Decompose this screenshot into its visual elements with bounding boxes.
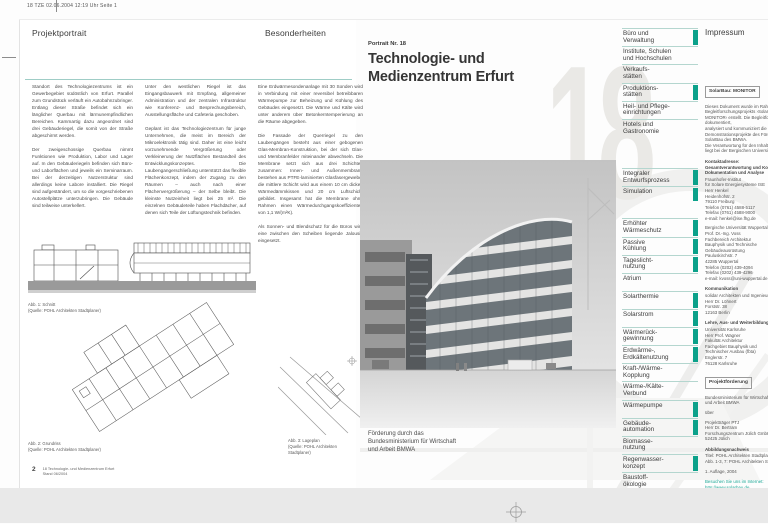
sidebar-item: Passive Kühlung xyxy=(622,237,698,255)
sidebar-item: Wärmepumpe xyxy=(622,400,698,418)
sidebar-item-label: Institute, Schulen und Hochschulen xyxy=(623,49,690,62)
sidebar-item-label: Heil- und Pflege- einrichtungen xyxy=(623,104,690,117)
figure2-caption: Abb. 2: Grundriss (Quelle: POHL Architek… xyxy=(28,441,101,453)
sidebar-item-label: Büro und Verwaltung xyxy=(623,31,690,44)
text-column-1: Standort des Technologiezentrums ist ein… xyxy=(32,83,133,216)
building-photo xyxy=(360,160,616,428)
sidebar-item-label: Tageslicht- nutzung xyxy=(623,258,690,271)
sidebar-item: Hotels und Gastronomie xyxy=(622,119,698,137)
sidebar-item-label: Gebäude- automation xyxy=(623,421,690,434)
active-marker xyxy=(693,293,698,308)
sidebar-item-label: Atrium xyxy=(623,276,690,283)
sidebar-item: Gebäude- automation xyxy=(622,418,698,436)
impressum-text-block: Titel: POHL Architekten Stadtplaner Abb.… xyxy=(705,453,768,464)
active-marker xyxy=(693,85,698,100)
impressum-text-block: Bundesministerium für Wirtschaft und Arb… xyxy=(705,395,768,406)
impressum-text-block: Projektförderung xyxy=(705,377,752,389)
impressum-column: Impressum SolarBau: MONITORDieses Dokume… xyxy=(705,28,768,490)
impressum-text-block: Fraunhofer-Institut für Solare Energiesy… xyxy=(705,177,768,222)
registration-mark xyxy=(504,500,528,524)
sidebar-item: Biomasse- nutzung xyxy=(622,436,698,454)
sidebar-item-label: Regenwasser- konzept xyxy=(623,457,690,470)
body-paragraph: Eine Erdwärmesondenanlage mit 30 Sonden … xyxy=(258,83,363,125)
sidebar-item-label: Integraler Entwurfsprozess xyxy=(623,171,690,184)
page-number: 2 xyxy=(32,466,36,477)
sidebar-item: Erdwärme-, Erdkältenutzung xyxy=(622,345,698,363)
impressum-text-block: Universität Karlsruhe Herr Prof. Wagner … xyxy=(705,327,768,366)
active-marker xyxy=(693,456,698,471)
footer-text: 18 Technologie- und Medienzentrum Erfurt… xyxy=(43,466,115,477)
body-paragraph: Die Fassade der Querriegel zu den Lauben… xyxy=(258,132,363,216)
active-marker xyxy=(693,170,698,185)
north-symbol xyxy=(347,356,357,366)
active-marker xyxy=(693,329,698,344)
sidebar-item: Institute, Schulen und Hochschulen xyxy=(622,46,698,64)
print-job-info: 18 TZE 02.06.2004 12:19 Uhr Seite 1 xyxy=(27,3,117,9)
sidebar-item-label: Hotels und Gastronomie xyxy=(623,122,690,135)
sidebar-item: Tageslicht- nutzung xyxy=(622,255,698,273)
sidebar-item-label: Erhöhter Wärmeschutz xyxy=(623,221,690,234)
crop-mark-vertical xyxy=(56,0,57,12)
active-marker xyxy=(693,239,698,254)
feature-list: Erhöhter Wärmeschutz Passive Kühlung Tag… xyxy=(622,218,698,490)
impressum-text-block: solidar Architekten und Ingenieure Herr … xyxy=(705,293,768,315)
active-marker xyxy=(693,347,698,362)
sidebar-item: Erhöhter Wärmeschutz xyxy=(622,218,698,236)
sidebar-item: Integraler Entwurfsprozess xyxy=(622,168,698,186)
process-list: Integraler Entwurfsprozess Simulation xyxy=(622,168,698,202)
active-marker xyxy=(693,220,698,235)
sidebar-item: Solarthermie xyxy=(622,291,698,309)
body-paragraph: Als Sonnen- und Blendschutz für die Büro… xyxy=(258,223,363,244)
impressum-text-block: SolarBau: MONITOR xyxy=(705,86,760,98)
sidebar-item: Regenwasser- konzept xyxy=(622,454,698,472)
sidebar-item-label: Passive Kühlung xyxy=(623,240,690,253)
site-plan-drawing xyxy=(278,353,362,435)
text-column-2: Unter den westlichen Riegel ist das Eing… xyxy=(145,83,246,223)
building-type-list: Büro und Verwaltung Institute, Schulen u… xyxy=(622,28,698,137)
sidebar-item-label: Wärmerück- gewinnung xyxy=(623,330,690,343)
funding-note: Förderung durch das Bundesministerium fü… xyxy=(368,430,456,454)
sidebar-item: Produktions- stätten xyxy=(622,83,698,101)
impressum-text-block: Bergische Universität Wuppertal Prof. Dr… xyxy=(705,225,768,281)
sidebar-item-label: Erdwärme-, Erdkältenutzung xyxy=(623,348,690,361)
category-sidebar: Büro und Verwaltung Institute, Schulen u… xyxy=(622,28,698,490)
impressum-text-block: Kontaktadresse: Gesamtverantwortung und … xyxy=(705,159,768,176)
body-paragraph: Standort des Technologiezentrums ist ein… xyxy=(32,83,133,139)
sidebar-item: Heil- und Pflege- einrichtungen xyxy=(622,101,698,119)
impressum-text-block: Dieses Dokument wurde im Rahmen des Begl… xyxy=(705,104,768,154)
figure3-caption: Abb. 3: Lageplan (Quelle: POHL Architekt… xyxy=(288,438,337,456)
body-paragraph: Geplant ist das Technologiezentrum für j… xyxy=(145,125,246,216)
page-footer: 2 18 Technologie- und Medienzentrum Erfu… xyxy=(32,466,114,477)
active-marker xyxy=(693,257,698,272)
page-title: Technologie- und Medienzentrum Erfurt xyxy=(368,51,514,86)
sidebar-item: Kraft-/Wärme- Kopplung xyxy=(622,363,698,381)
sidebar-item: Atrium xyxy=(622,273,698,291)
sidebar-item: Verkaufs- stätten xyxy=(622,64,698,82)
sidebar-item-label: Simulation xyxy=(623,189,690,196)
sidebar-item-label: Wärmepumpe xyxy=(623,403,690,410)
body-paragraph: Unter den westlichen Riegel ist das Eing… xyxy=(145,83,246,118)
section-drawing xyxy=(28,235,256,297)
section-header-besonderheiten: Besonderheiten xyxy=(265,28,326,38)
crop-mark-horizontal xyxy=(2,57,16,58)
sidebar-item: Solarstrom xyxy=(622,309,698,327)
impressum-text-block: Projektträger PTJ Herr Dr. Bertram Forsc… xyxy=(705,420,768,442)
impressum-text-block: über xyxy=(705,410,768,416)
body-paragraph: Der zweigeschossige Querbau nimmt Funkti… xyxy=(32,146,133,209)
sidebar-item-label: Solarstrom xyxy=(623,312,690,319)
sidebar-item-label: Solarthermie xyxy=(623,294,690,301)
bleed-area xyxy=(0,488,768,523)
sidebar-item-label: Produktions- stätten xyxy=(623,86,690,99)
sidebar-item: Wärmerück- gewinnung xyxy=(622,327,698,345)
impressum-text-block: 1. Auflage, 2004 xyxy=(705,469,768,475)
sidebar-item: Wärme-/Kälte- Verbund xyxy=(622,381,698,399)
impressum-title: Impressum xyxy=(705,28,768,37)
left-page: Projektportrait Besonderheiten Standort … xyxy=(20,20,356,488)
sidebar-item: Simulation xyxy=(622,186,698,202)
section-header-projektportrait: Projektportrait xyxy=(32,28,86,38)
text-column-3: Eine Erdwärmesondenanlage mit 30 Sonden … xyxy=(258,83,363,251)
sidebar-item-label: Biomasse- nutzung xyxy=(623,439,690,452)
floor-plan-drawing xyxy=(48,296,258,438)
header-rule xyxy=(25,79,352,80)
impressum-text-block: Lehre, Aus- und Weiterbildung xyxy=(705,320,768,326)
active-marker xyxy=(693,420,698,435)
sidebar-item-label: Baustoff- ökologie xyxy=(623,475,690,488)
document-page: { "meta": { "print_info": "18 TZE 02.06.… xyxy=(0,0,768,523)
impressum-sections: SolarBau: MONITORDieses Dokument wurde i… xyxy=(705,79,768,490)
portrait-kicker: Portrait Nr. 18 xyxy=(368,41,406,47)
sidebar-item-label: Wärme-/Kälte- Verbund xyxy=(623,384,690,397)
impressum-text-block: Kommunikation xyxy=(705,286,768,292)
sidebar-item-label: Verkaufs- stätten xyxy=(623,67,690,80)
active-marker xyxy=(693,188,698,201)
active-marker xyxy=(693,311,698,326)
active-marker xyxy=(693,30,698,45)
impressum-text-block: Abbildungsnachweis xyxy=(705,447,768,453)
right-page: 18 Portrait Nr. 18 Technologie- und Medi… xyxy=(360,20,768,488)
active-marker xyxy=(693,402,698,417)
sidebar-item: Büro und Verwaltung xyxy=(622,28,698,46)
sidebar-item-label: Kraft-/Wärme- Kopplung xyxy=(623,366,690,379)
